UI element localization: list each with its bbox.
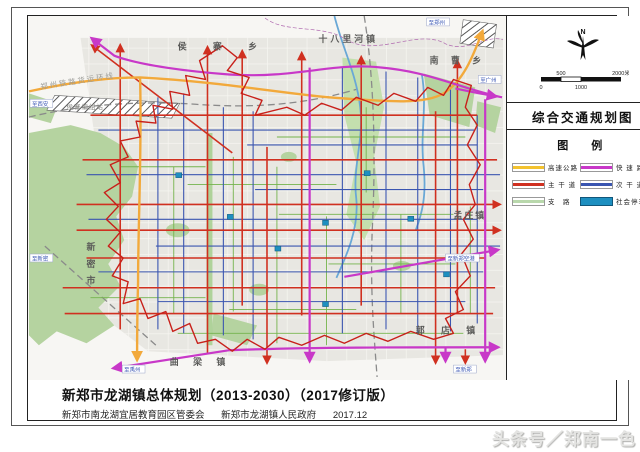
svg-text:至郑州: 至郑州 bbox=[429, 18, 445, 26]
label-mengzhuang: 孟庄镇 bbox=[453, 209, 486, 220]
legend-item-branch: 支 路 bbox=[512, 196, 578, 206]
legend-item-expressway: 快 速 路 bbox=[580, 162, 640, 172]
map-frame: 侯 寨 乡 十八里河镇 南 曹 乡 孟庄镇 郭 店 镇 曲 梁 镇 新密市 郑州… bbox=[27, 15, 617, 421]
label-guodian: 郭 店 镇 bbox=[416, 324, 482, 335]
agency-2: 新郑市龙湖镇人民政府 bbox=[221, 410, 316, 421]
label-shibalihe: 十八里河镇 bbox=[319, 33, 378, 44]
north-scale-box: N 500 2000米 0 1000 bbox=[507, 16, 640, 103]
title-block: 新郑市龙湖镇总体规划（2013-2030）（2017修订版） 新郑市南龙湖宜居教… bbox=[28, 380, 616, 421]
svg-text:至广州: 至广州 bbox=[480, 76, 496, 84]
label-marshalling-yard: 侯寨编组站 bbox=[67, 102, 104, 111]
edge-label-zhengzhou: 至郑州 bbox=[427, 18, 450, 26]
label-xinmi: 新密市 bbox=[85, 241, 95, 293]
legend-grid: 高速公路 快 速 路 主 干 道 次 干 道 bbox=[507, 162, 640, 206]
scale-tick-2000: 2000米 bbox=[612, 69, 629, 77]
edge-label-yuzhou: 至禹州 bbox=[122, 365, 145, 373]
legend: 图 例 高速公路 快 速 路 主 干 道 bbox=[507, 130, 640, 380]
legend-item-secondary: 次 干 道 bbox=[580, 179, 640, 189]
scale-bar: 500 2000米 0 1000 bbox=[537, 68, 629, 92]
agency-1: 新郑市南龙湖宜居教育园区管委会 bbox=[62, 410, 205, 421]
legend-item-highway: 高速公路 bbox=[512, 162, 578, 172]
north-arrow-icon: N bbox=[561, 26, 605, 66]
scale-tick-1000: 1000 bbox=[575, 85, 587, 91]
branch-swatch bbox=[512, 197, 545, 206]
highway-swatch bbox=[512, 163, 545, 172]
svg-text:至新郑空港: 至新郑空港 bbox=[447, 254, 475, 262]
label-nancao: 南 曹 乡 bbox=[430, 55, 486, 66]
watermark: 头条号／郑南一色 bbox=[492, 425, 636, 450]
secondary-swatch bbox=[580, 180, 613, 189]
svg-text:至西安: 至西安 bbox=[32, 100, 49, 108]
north-label: N bbox=[580, 29, 585, 36]
legend-item-arterial: 主 干 道 bbox=[512, 179, 578, 189]
side-panel: N 500 2000米 0 1000 bbox=[507, 16, 640, 380]
expressway-swatch bbox=[580, 163, 613, 172]
legend-item-parking: 社会停车场 bbox=[580, 196, 640, 206]
map-sheet: 侯 寨 乡 十八里河镇 南 曹 乡 孟庄镇 郭 店 镇 曲 梁 镇 新密市 郑州… bbox=[0, 0, 640, 452]
edge-label-xian: 至西安 bbox=[30, 99, 53, 107]
planning-map-svg: 侯 寨 乡 十八里河镇 南 曹 乡 孟庄镇 郭 店 镇 曲 梁 镇 新密市 郑州… bbox=[28, 16, 505, 377]
map-canvas: 侯 寨 乡 十八里河镇 南 曹 乡 孟庄镇 郭 店 镇 曲 梁 镇 新密市 郑州… bbox=[28, 16, 507, 380]
plan-date: 2017.12 bbox=[333, 410, 367, 421]
plan-title: 新郑市龙湖镇总体规划（2013-2030）（2017修订版） bbox=[62, 384, 616, 404]
svg-text:至新密: 至新密 bbox=[32, 254, 49, 262]
legend-title: 图 例 bbox=[507, 137, 640, 153]
edge-label-konggang: 至新郑空港 bbox=[446, 254, 480, 262]
arterial-swatch bbox=[512, 180, 545, 189]
svg-text:至新郑: 至新郑 bbox=[455, 366, 472, 374]
svg-text:至禹州: 至禹州 bbox=[124, 366, 140, 374]
content-row: 侯 寨 乡 十八里河镇 南 曹 乡 孟庄镇 郭 店 镇 曲 梁 镇 新密市 郑州… bbox=[28, 16, 616, 380]
scale-tick-500: 500 bbox=[556, 71, 565, 77]
label-houzhai: 侯 寨 乡 bbox=[178, 41, 269, 52]
label-quliang: 曲 梁 镇 bbox=[170, 356, 231, 367]
parking-swatch bbox=[580, 197, 613, 206]
plan-subtitle: 新郑市南龙湖宜居教育园区管委会 新郑市龙湖镇人民政府 2017.12 bbox=[62, 407, 616, 421]
edge-label-xinmi: 至新密 bbox=[30, 254, 53, 262]
edge-label-xinzheng: 至新郑 bbox=[453, 365, 476, 373]
edge-label-guangzhou: 至广州 bbox=[478, 76, 501, 84]
scale-tick-0: 0 bbox=[539, 85, 542, 91]
map-title: 综合交通规划图 bbox=[507, 103, 640, 130]
